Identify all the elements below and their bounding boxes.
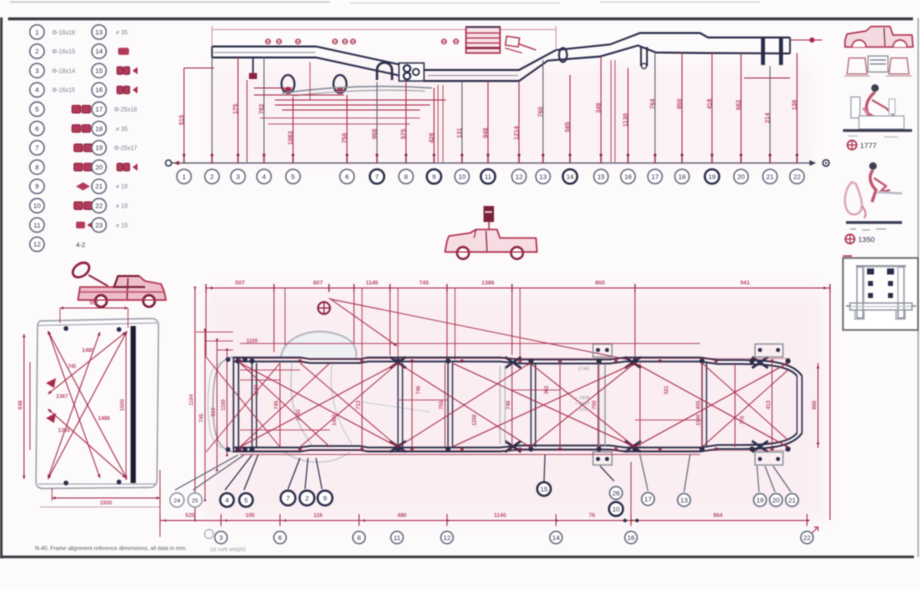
svg-text:21: 21	[95, 184, 103, 191]
svg-text:≠ 19: ≠ 19	[116, 223, 128, 229]
svg-text:14: 14	[552, 535, 560, 542]
svg-text:1: 1	[35, 29, 39, 36]
svg-text:Φ-16x15: Φ-16x15	[52, 88, 76, 94]
svg-text:16: 16	[624, 174, 632, 181]
svg-text:105: 105	[245, 513, 254, 519]
svg-text:1214: 1214	[514, 126, 521, 140]
svg-text:941: 941	[740, 281, 750, 287]
svg-text:12: 12	[33, 242, 41, 249]
svg-text:745: 745	[199, 414, 205, 423]
svg-text:26: 26	[612, 490, 620, 497]
svg-text:585: 585	[565, 121, 572, 132]
svg-text:≠ 19: ≠ 19	[116, 185, 128, 191]
svg-text:17: 17	[651, 174, 659, 181]
svg-text:11: 11	[393, 535, 400, 542]
svg-text:746: 746	[416, 386, 422, 395]
svg-text:12: 12	[515, 174, 523, 181]
svg-text:3: 3	[219, 535, 223, 542]
svg-text:23: 23	[95, 222, 103, 229]
svg-text:131: 131	[457, 127, 464, 138]
svg-text:1480: 1480	[82, 348, 94, 354]
svg-text:5: 5	[35, 107, 39, 114]
svg-text:Φ-16x18: Φ-16x18	[52, 30, 76, 36]
svg-text:13: 13	[680, 497, 688, 504]
svg-text:507: 507	[235, 281, 245, 287]
svg-text:11: 11	[33, 222, 40, 229]
svg-text:745: 745	[419, 281, 429, 287]
svg-text:21: 21	[766, 174, 774, 181]
svg-text:18: 18	[678, 174, 686, 181]
svg-text:7: 7	[375, 174, 379, 181]
svg-text:214: 214	[765, 112, 772, 123]
svg-text:521: 521	[664, 386, 670, 395]
svg-text:≠ 35: ≠ 35	[116, 127, 128, 133]
svg-text:515: 515	[179, 114, 186, 125]
svg-text:12: 12	[443, 535, 451, 542]
svg-text:9: 9	[432, 174, 436, 181]
svg-text:22: 22	[793, 174, 801, 181]
svg-text:1493: 1493	[296, 409, 302, 420]
svg-text:Φ-25x18: Φ-25x18	[114, 108, 138, 114]
svg-text:348: 348	[596, 102, 603, 113]
svg-text:9: 9	[35, 184, 39, 191]
svg-text:362: 362	[544, 386, 550, 395]
svg-text:19: 19	[756, 497, 764, 504]
svg-text:756: 756	[342, 132, 349, 143]
svg-text:910: 910	[211, 408, 217, 417]
svg-text:968: 968	[372, 128, 379, 139]
svg-text:1749: 1749	[578, 366, 589, 372]
svg-text:15: 15	[95, 68, 103, 75]
svg-text:19: 19	[708, 174, 716, 181]
svg-text:648: 648	[18, 401, 24, 410]
svg-text:16: 16	[627, 535, 635, 542]
svg-text:N-40. Frame alignment referenc: N-40. Frame alignment reference dimensio…	[35, 546, 187, 552]
svg-text:1104: 1104	[189, 394, 195, 405]
svg-text:Φ-18x14: Φ-18x14	[52, 69, 76, 75]
svg-text:(at curb weight): (at curb weight)	[210, 547, 246, 553]
svg-text:1386: 1386	[482, 281, 496, 287]
svg-text:1258: 1258	[472, 414, 478, 425]
svg-text:713: 713	[356, 401, 362, 410]
svg-text:860: 860	[595, 281, 605, 287]
svg-text:25: 25	[192, 498, 198, 504]
svg-text:20: 20	[772, 497, 780, 504]
svg-text:1100: 1100	[246, 339, 257, 345]
svg-text:1145: 1145	[366, 281, 379, 287]
svg-text:Φ-16x15: Φ-16x15	[52, 50, 76, 56]
svg-text:575: 575	[401, 128, 408, 139]
svg-text:= 1557: = 1557	[575, 401, 590, 407]
svg-text:22: 22	[95, 203, 103, 210]
svg-text:11: 11	[484, 174, 491, 181]
svg-text:662: 662	[736, 99, 743, 110]
svg-text:4: 4	[35, 87, 39, 94]
svg-text:14: 14	[566, 174, 574, 181]
svg-text:9: 9	[323, 495, 327, 502]
svg-text:14: 14	[95, 49, 103, 56]
svg-text:807: 807	[313, 281, 323, 287]
svg-text:745: 745	[274, 401, 280, 410]
svg-text:6: 6	[35, 126, 39, 133]
svg-text:760: 760	[538, 106, 545, 117]
svg-text:Φ-25x17: Φ-25x17	[114, 146, 138, 152]
svg-text:1365: 1365	[58, 428, 70, 434]
svg-text:782: 782	[259, 103, 266, 114]
svg-text:1040: 1040	[696, 414, 702, 425]
svg-text:700: 700	[592, 401, 598, 410]
svg-text:426: 426	[429, 132, 436, 143]
svg-text:1367: 1367	[56, 394, 68, 400]
svg-text:21: 21	[788, 497, 796, 504]
svg-text:15: 15	[597, 174, 605, 181]
svg-text:7: 7	[286, 495, 290, 502]
svg-text:480: 480	[397, 513, 406, 519]
svg-text:≠ 19: ≠ 19	[116, 204, 128, 210]
svg-text:13: 13	[95, 29, 103, 36]
svg-text:8: 8	[35, 164, 39, 171]
svg-text:866: 866	[812, 401, 818, 410]
svg-text:= 170: = 170	[575, 407, 587, 413]
svg-text:20: 20	[737, 174, 745, 181]
svg-text:1777: 1777	[860, 141, 877, 150]
svg-text:1140: 1140	[494, 513, 506, 519]
svg-text:10: 10	[612, 506, 620, 513]
svg-text:138: 138	[792, 99, 799, 110]
svg-text:= 1556: = 1556	[575, 395, 590, 401]
svg-text:116: 116	[313, 513, 322, 519]
svg-text:1083: 1083	[288, 131, 295, 145]
svg-text:1350: 1350	[858, 235, 875, 244]
svg-text:5: 5	[291, 174, 295, 181]
svg-text:375: 375	[740, 416, 746, 425]
svg-text:10: 10	[33, 203, 41, 210]
svg-text:1100: 1100	[221, 399, 227, 410]
svg-text:18: 18	[95, 126, 103, 133]
svg-text:1460: 1460	[332, 414, 338, 425]
svg-text:413: 413	[766, 401, 772, 410]
svg-text:2: 2	[35, 49, 39, 56]
svg-text:22: 22	[803, 535, 811, 542]
svg-text:19: 19	[95, 145, 103, 152]
svg-text:3: 3	[35, 68, 39, 75]
svg-text:4: 4	[225, 497, 229, 504]
svg-text:175: 175	[233, 103, 240, 114]
svg-text:16: 16	[95, 87, 103, 94]
svg-text:1500: 1500	[100, 501, 112, 507]
svg-text:764: 764	[650, 98, 657, 109]
svg-text:455: 455	[696, 401, 702, 410]
svg-text:1: 1	[182, 174, 186, 181]
svg-text:8: 8	[357, 535, 361, 542]
svg-text:17: 17	[644, 496, 652, 503]
svg-text:755: 755	[439, 401, 445, 410]
svg-text:4-2: 4-2	[76, 242, 86, 249]
svg-text:418: 418	[707, 98, 714, 109]
svg-text:1500: 1500	[120, 399, 126, 411]
svg-text:≠ 35: ≠ 35	[116, 30, 128, 36]
svg-text:5: 5	[244, 497, 248, 504]
svg-text:2: 2	[210, 174, 214, 181]
svg-text:13: 13	[539, 174, 547, 181]
svg-text:525: 525	[185, 513, 194, 519]
svg-text:8: 8	[404, 174, 408, 181]
svg-text:76: 76	[589, 513, 595, 519]
svg-text:1130: 1130	[623, 113, 630, 127]
svg-text:20: 20	[95, 164, 103, 171]
svg-text:864: 864	[713, 513, 723, 519]
svg-text:15: 15	[540, 486, 548, 493]
svg-text:6: 6	[345, 174, 349, 181]
svg-text:746: 746	[506, 401, 512, 410]
svg-text:2: 2	[305, 495, 309, 502]
svg-text:10: 10	[458, 174, 466, 181]
svg-text:3: 3	[236, 174, 240, 181]
svg-text:7: 7	[35, 145, 39, 152]
svg-text:17: 17	[95, 107, 103, 114]
svg-text:948: 948	[483, 127, 490, 138]
svg-text:24: 24	[174, 498, 181, 504]
svg-text:957: 957	[90, 301, 99, 307]
svg-text:1180: 1180	[254, 384, 260, 395]
svg-text:745: 745	[68, 364, 77, 370]
svg-text:4: 4	[262, 174, 266, 181]
svg-text:950: 950	[677, 98, 684, 109]
svg-text:1486: 1486	[98, 416, 110, 422]
svg-text:6: 6	[278, 535, 282, 542]
